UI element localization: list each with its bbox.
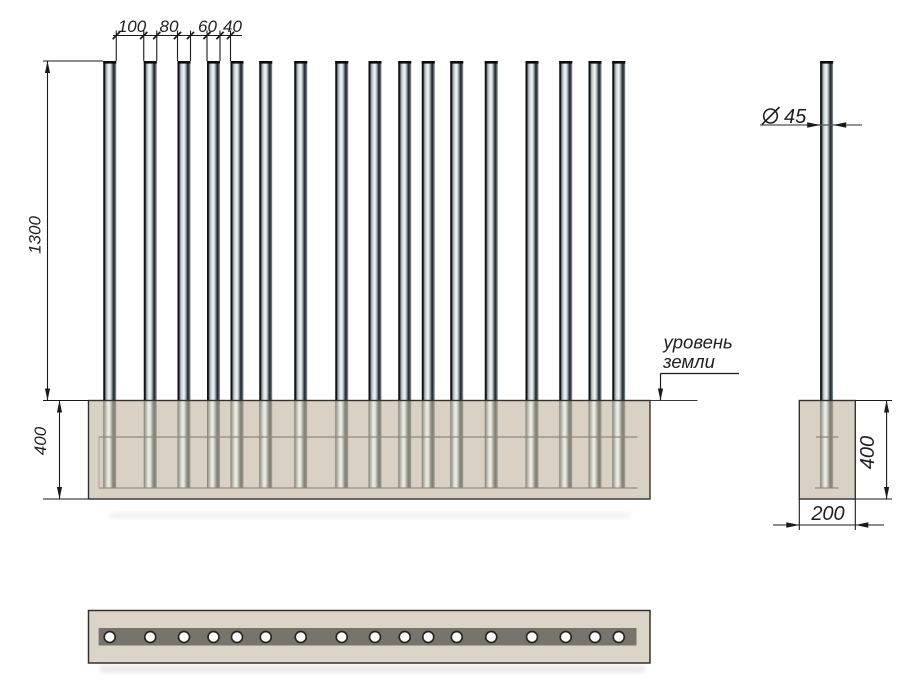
svg-text:80: 80 (160, 17, 179, 36)
svg-text:400: 400 (857, 436, 879, 469)
svg-text:100: 100 (118, 17, 147, 36)
svg-text:уровень: уровень (662, 332, 733, 353)
svg-text:400: 400 (31, 426, 50, 455)
svg-text:200: 200 (810, 503, 844, 525)
svg-text:60: 60 (198, 17, 217, 36)
svg-text:40: 40 (223, 17, 242, 36)
svg-text:45: 45 (784, 106, 807, 128)
svg-text:1300: 1300 (26, 216, 45, 254)
svg-text:земли: земли (662, 351, 715, 372)
